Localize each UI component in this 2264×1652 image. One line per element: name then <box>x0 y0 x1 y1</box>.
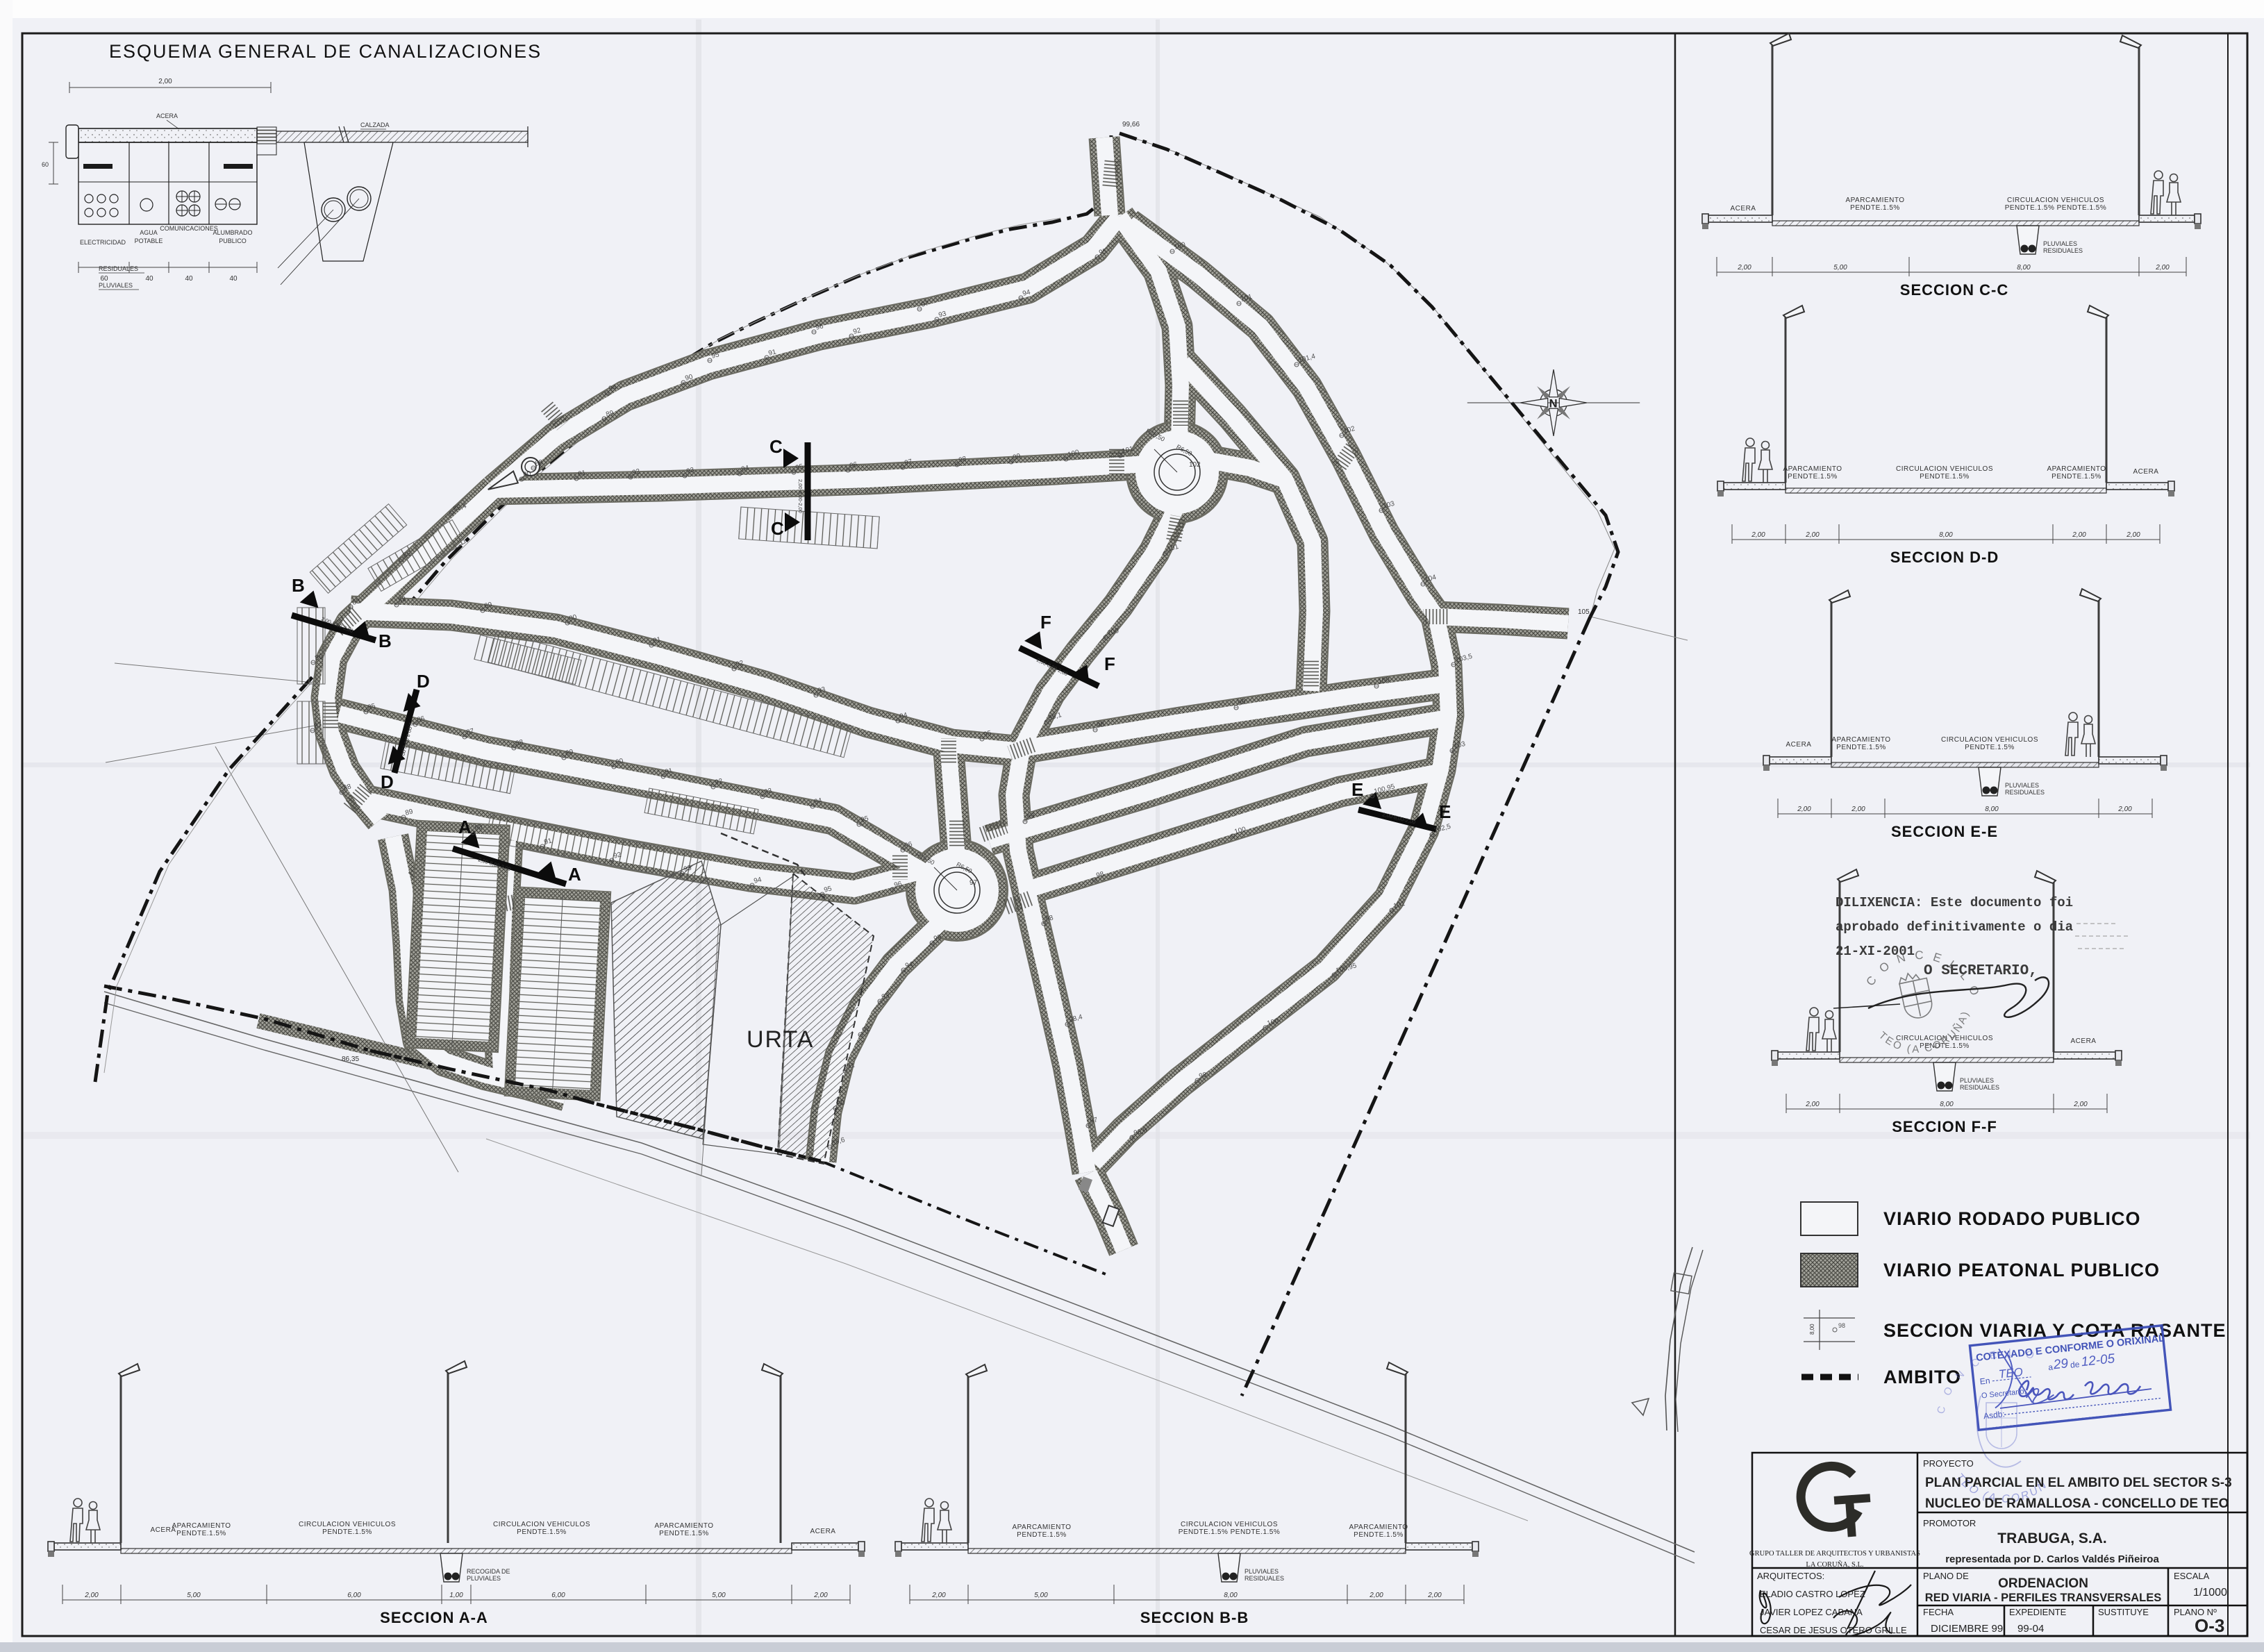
svg-text:APARCAMIENTO: APARCAMIENTO <box>1831 736 1890 744</box>
svg-text:8,00: 8,00 <box>1224 1592 1238 1599</box>
svg-text:ARQUITECTOS:: ARQUITECTOS: <box>1757 1571 1824 1581</box>
svg-text:2,00: 2,00 <box>158 78 172 85</box>
svg-text:1/1000: 1/1000 <box>2193 1587 2227 1599</box>
svg-text:ACERA: ACERA <box>1786 741 1812 749</box>
svg-text:B: B <box>378 631 392 651</box>
svg-text:representada por D. Carlos Val: representada por D. Carlos Valdés Piñeir… <box>1945 1553 2159 1565</box>
svg-text:E: E <box>1439 801 1451 822</box>
svg-text:PENDTE.1.5%: PENDTE.1.5% <box>2051 473 2101 481</box>
svg-text:CIRCULACION VEHICULOS: CIRCULACION VEHICULOS <box>299 1521 396 1528</box>
svg-text:B: B <box>292 575 305 596</box>
svg-text:GRUPO TALLER DE ARQUITECTOS: GRUPO TALLER DE ARQUITECTOS Y URBANISTAS <box>1749 1550 1920 1558</box>
svg-text:5,00: 5,00 <box>187 1592 201 1599</box>
svg-text:PENDTE.1.5%: PENDTE.1.5% <box>1788 473 1838 481</box>
svg-text:PENDTE.1.5%: PENDTE.1.5% <box>1965 744 2015 751</box>
svg-text:8,00: 8,00 <box>1985 806 1999 813</box>
svg-text:RESIDUALES: RESIDUALES <box>2043 247 2083 254</box>
svg-text:VIARIO PEATONAL PUBLICO: VIARIO PEATONAL PUBLICO <box>1883 1260 2160 1280</box>
svg-text:APARCAMIENTO: APARCAMIENTO <box>654 1522 713 1530</box>
svg-text:5,00: 5,00 <box>712 1592 726 1599</box>
svg-text:8,00: 8,00 <box>1809 1324 1815 1335</box>
svg-text:PENDTE.1.5%: PENDTE.1.5% <box>1354 1531 1404 1539</box>
svg-text:DICIEMBRE 99: DICIEMBRE 99 <box>1931 1623 2003 1635</box>
svg-text:99,66: 99,66 <box>1122 121 1140 128</box>
svg-text:ACERA: ACERA <box>1731 205 1756 212</box>
svg-text:POTABLE: POTABLE <box>135 237 163 244</box>
svg-text:2,00: 2,00 <box>813 1592 828 1599</box>
svg-text:99-04: 99-04 <box>2017 1623 2044 1635</box>
svg-text:PLUVIALES: PLUVIALES <box>2043 240 2077 247</box>
svg-text:DILIXENCIA: Este documento foi: DILIXENCIA: Este documento foi <box>1836 895 2073 910</box>
svg-text:2,00: 2,00 <box>1751 531 1765 539</box>
svg-text:RED VIARIA - PERFILES TRANSVER: RED VIARIA - PERFILES TRANSVERSALES <box>1925 1592 2161 1604</box>
svg-text:ESCALA: ESCALA <box>2174 1571 2210 1581</box>
svg-text:8,00: 8,00 <box>2017 264 2031 272</box>
svg-text:A: A <box>458 817 472 837</box>
svg-text:RECOGIDA DE: RECOGIDA DE <box>467 1568 510 1575</box>
svg-text:PLUVIALES: PLUVIALES <box>1960 1077 1994 1084</box>
svg-text:ACERA: ACERA <box>810 1528 836 1535</box>
svg-text:ELECTRICIDAD: ELECTRICIDAD <box>80 239 126 246</box>
svg-text:SECCION B-B: SECCION B-B <box>1140 1609 1249 1626</box>
svg-text:EXPEDIENTE: EXPEDIENTE <box>2009 1607 2067 1617</box>
svg-text:D: D <box>381 771 394 792</box>
svg-text:PENDTE.1.5%: PENDTE.1.5% <box>1850 204 1900 212</box>
svg-text:60: 60 <box>42 161 49 168</box>
svg-text:APARCAMIENTO: APARCAMIENTO <box>1012 1524 1071 1531</box>
svg-text:FECHA: FECHA <box>1923 1607 1954 1617</box>
svg-text:VIARIO RODADO PUBLICO: VIARIO RODADO PUBLICO <box>1883 1208 2141 1229</box>
svg-text:ELADIO CASTRO LOPEZ: ELADIO CASTRO LOPEZ <box>1760 1589 1865 1599</box>
svg-text:2,00: 2,00 <box>2073 1101 2088 1108</box>
svg-text:TRABUGA, S.A.: TRABUGA, S.A. <box>1997 1530 2107 1546</box>
svg-text:SECCION A-A: SECCION A-A <box>380 1609 488 1626</box>
svg-text:40: 40 <box>145 275 153 283</box>
svg-text:PLAN PARCIAL EN EL AMBITO DEL: PLAN PARCIAL EN EL AMBITO DEL SECTOR S-3 <box>1925 1476 2232 1490</box>
svg-text:APARCAMIENTO: APARCAMIENTO <box>1783 465 1842 473</box>
svg-text:102: 102 <box>1189 461 1201 469</box>
svg-text:ALUMBRADO: ALUMBRADO <box>213 229 252 236</box>
svg-text:RESIDUALES: RESIDUALES <box>1245 1575 1284 1582</box>
svg-text:PENDTE.1.5%: PENDTE.1.5% <box>1836 744 1886 751</box>
svg-text:CESAR DE JESUS OTERO GRILL: CESAR DE JESUS OTERO GRILLE <box>1760 1625 1907 1635</box>
svg-text:ACERA: ACERA <box>156 112 178 119</box>
svg-text:F: F <box>1104 653 1115 674</box>
svg-text:C: C <box>771 518 784 539</box>
svg-text:URTA: URTA <box>747 1026 814 1053</box>
svg-text:N: N <box>1549 397 1558 410</box>
svg-text:2,00: 2,00 <box>1805 1101 1820 1108</box>
svg-text:PROMOTOR: PROMOTOR <box>1923 1518 1976 1528</box>
svg-text:2,00: 2,00 <box>931 1592 946 1599</box>
svg-text:CIRCULACION VEHICULOS: CIRCULACION VEHICULOS <box>2007 197 2104 204</box>
svg-text:LA CORUÑA, S.L.: LA CORUÑA, S.L. <box>1806 1560 1863 1569</box>
svg-text:PENDTE.1.5%: PENDTE.1.5% <box>176 1530 226 1537</box>
svg-text:PENDTE.1.5%: PENDTE.1.5% <box>1920 473 1970 481</box>
svg-text:PENDTE.1.5% PENDTE.1.5%: PENDTE.1.5% PENDTE.1.5% <box>1179 1528 1281 1536</box>
svg-text:40: 40 <box>185 275 193 283</box>
svg-text:SECCION D-D: SECCION D-D <box>1890 549 1999 566</box>
svg-text:CIRCULACION VEHICULOS: CIRCULACION VEHICULOS <box>1896 465 1993 473</box>
svg-text:2,00: 2,00 <box>1737 264 1751 272</box>
svg-text:8,00: 8,00 <box>1940 1101 1954 1108</box>
svg-text:A: A <box>568 864 581 885</box>
svg-text:2,00: 2,00 <box>1851 806 1865 813</box>
svg-text:SECCION F-F: SECCION F-F <box>1892 1118 1997 1135</box>
svg-text:D: D <box>417 671 430 692</box>
svg-text:ACERA: ACERA <box>2133 468 2159 476</box>
svg-text:COMUNICACIONES: COMUNICACIONES <box>160 225 218 232</box>
svg-text:PLANO DE: PLANO DE <box>1923 1571 1969 1581</box>
svg-text:E: E <box>1351 779 1363 800</box>
svg-text:2,00: 2,00 <box>84 1592 99 1599</box>
svg-text:PLUVIALES: PLUVIALES <box>2005 782 2039 789</box>
svg-text:de: de <box>2070 1359 2080 1369</box>
svg-text:PUBLICO: PUBLICO <box>219 237 247 244</box>
svg-text:En: En <box>1979 1376 1990 1386</box>
svg-text:SECCION C-C: SECCION C-C <box>1900 281 2008 299</box>
svg-text:AGUA: AGUA <box>140 229 158 236</box>
svg-text:ACERA: ACERA <box>2071 1037 2097 1045</box>
svg-text:JAVIER LOPEZ CABANA: JAVIER LOPEZ CABANA <box>1760 1607 1863 1617</box>
svg-text:6,00: 6,00 <box>347 1592 361 1599</box>
svg-text:APARCAMIENTO: APARCAMIENTO <box>1845 197 1904 204</box>
svg-text:PENDTE.1.5% PENDTE.1.5%: PENDTE.1.5% PENDTE.1.5% <box>2005 204 2107 212</box>
svg-text:NUCLEO DE RAMALLOSA - CONCELL: NUCLEO DE RAMALLOSA - CONCELLO DE TEO <box>1925 1496 2229 1511</box>
svg-text:RESIDUALES: RESIDUALES <box>2005 789 2045 796</box>
svg-text:PENDTE.1.5%: PENDTE.1.5% <box>322 1528 372 1536</box>
svg-text:2,00: 2,00 <box>2126 531 2140 539</box>
svg-text:105: 105 <box>1578 608 1590 616</box>
svg-text:2,00: 2,00 <box>1369 1592 1383 1599</box>
svg-text:CALZADA: CALZADA <box>360 122 390 128</box>
svg-text:PENDTE.1.5%: PENDTE.1.5% <box>1017 1531 1067 1539</box>
svg-text:APARCAMIENTO: APARCAMIENTO <box>1349 1524 1408 1531</box>
svg-text:86,35: 86,35 <box>342 1056 359 1063</box>
svg-text:APARCAMIENTO: APARCAMIENTO <box>2047 465 2106 473</box>
svg-text:CIRCULACION VEHICULOS: CIRCULACION VEHICULOS <box>1181 1521 1278 1528</box>
svg-text:98: 98 <box>1838 1322 1845 1329</box>
svg-text:2,00: 2,00 <box>2072 531 2086 539</box>
svg-text:SUSTITUYE: SUSTITUYE <box>2098 1607 2149 1617</box>
svg-text:PLUVIALES: PLUVIALES <box>99 282 133 289</box>
svg-text:2,00: 2,00 <box>1427 1592 1442 1599</box>
svg-text:aprobado definitivamente o dia: aprobado definitivamente o dia <box>1836 919 2073 935</box>
svg-text:2,00: 2,00 <box>2155 264 2170 272</box>
svg-text:PLUVIALES: PLUVIALES <box>467 1575 501 1582</box>
svg-text:2,00: 2,00 <box>1797 806 1811 813</box>
svg-text:PROYECTO: PROYECTO <box>1923 1458 1974 1469</box>
svg-text:PLUVIALES: PLUVIALES <box>1245 1568 1279 1575</box>
svg-text:CIRCULACION VEHICULOS: CIRCULACION VEHICULOS <box>1941 736 2038 744</box>
svg-text:O-3: O-3 <box>2195 1615 2224 1636</box>
svg-text:6,00: 6,00 <box>551 1592 565 1599</box>
svg-text:RESIDUALES: RESIDUALES <box>1960 1084 1999 1091</box>
svg-text:40: 40 <box>229 275 238 283</box>
svg-text:2,00: 2,00 <box>1805 531 1820 539</box>
svg-text:97: 97 <box>969 879 978 887</box>
svg-text:2,00: 2,00 <box>2117 806 2132 813</box>
svg-text:C: C <box>769 436 783 457</box>
svg-text:F: F <box>1040 612 1051 633</box>
svg-text:8,00: 8,00 <box>1939 531 1953 539</box>
svg-text:ESQUEMA GENERAL DE CANALIZACIO: ESQUEMA GENERAL DE CANALIZACIONES <box>109 41 542 62</box>
svg-text:5,00: 5,00 <box>1833 264 1847 272</box>
svg-text:SECCION E-E: SECCION E-E <box>1891 823 1998 840</box>
svg-text:2,00-8,00-2,00: 2,00-8,00-2,00 <box>797 479 804 513</box>
svg-text:PENDTE.1.5%: PENDTE.1.5% <box>517 1528 567 1536</box>
svg-text:APARCAMIENTO: APARCAMIENTO <box>172 1522 231 1530</box>
svg-text:1,00: 1,00 <box>449 1592 463 1599</box>
svg-text:5,00: 5,00 <box>1034 1592 1048 1599</box>
svg-text:29: 29 <box>2052 1356 2070 1372</box>
svg-text:PENDTE.1.5%: PENDTE.1.5% <box>659 1530 709 1537</box>
svg-text:RESIDUALES: RESIDUALES <box>99 265 138 272</box>
svg-text:ORDENACION: ORDENACION <box>1998 1576 2088 1591</box>
svg-text:CIRCULACION VEHICULOS: CIRCULACION VEHICULOS <box>493 1521 590 1528</box>
